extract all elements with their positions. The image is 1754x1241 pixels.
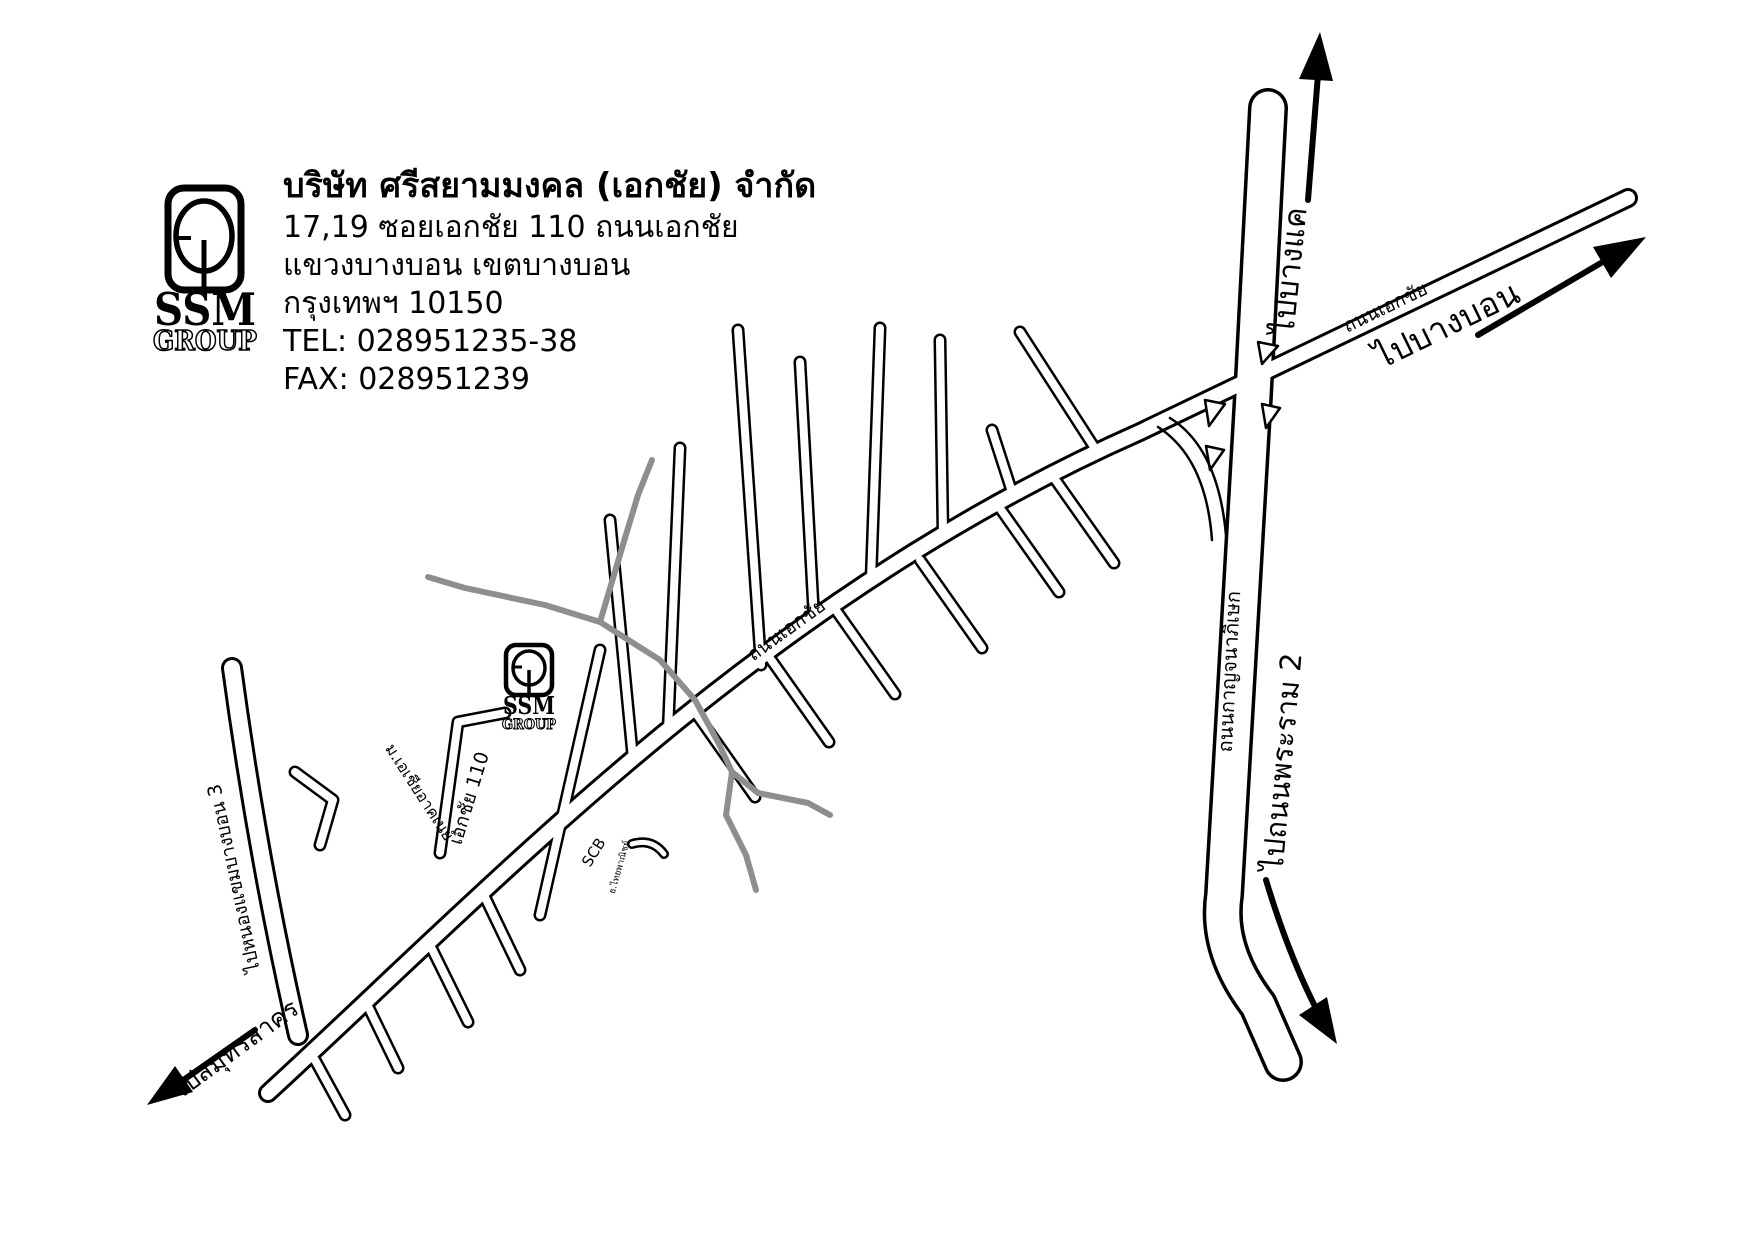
company-address1: 17,19 ซอยเอกชัย 110 ถนนเอกชัย (283, 209, 816, 247)
location-map: ถนนเอกชัย ถนนเอกชัย ถนนกาญจนาภิเษก เอกชั… (0, 0, 1754, 1241)
company-fax: FAX: 028951239 (283, 361, 816, 399)
company-address2: แขวงบางบอน เขตบางบอน (283, 247, 816, 285)
logo-subtext: GROUP (153, 326, 257, 357)
office-location-marker: SSM GROUP (502, 645, 556, 733)
junction-triangle (1205, 400, 1225, 426)
marker-text: SSM (503, 691, 555, 720)
company-tel: TEL: 028951235-38 (283, 323, 816, 361)
direction-label-rama2: ไปถนนพระราม 2 (1255, 652, 1308, 875)
poi-label-scb-bank: ธ.ไทยพาณิชย์ (606, 839, 633, 895)
company-info-block: บริษัท ศรีสยามมงคล (เอกชัย) จำกัด 17,19 … (283, 163, 816, 399)
map-drawing: ถนนเอกชัย ถนนเอกชัย ถนนกาญจนาภิเษก เอกชั… (0, 0, 1754, 1241)
arrow-bang-khae-icon (1299, 32, 1333, 200)
company-logo: SSM GROUP (153, 188, 257, 357)
company-name: บริษัท ศรีสยามมงคล (เอกชัย) จำกัด (283, 163, 816, 209)
marker-subtext: GROUP (502, 717, 556, 733)
ramp-line (1158, 427, 1212, 540)
company-address3: กรุงเทพฯ 10150 (283, 285, 816, 323)
poi-label-scb: SCB (578, 835, 609, 870)
